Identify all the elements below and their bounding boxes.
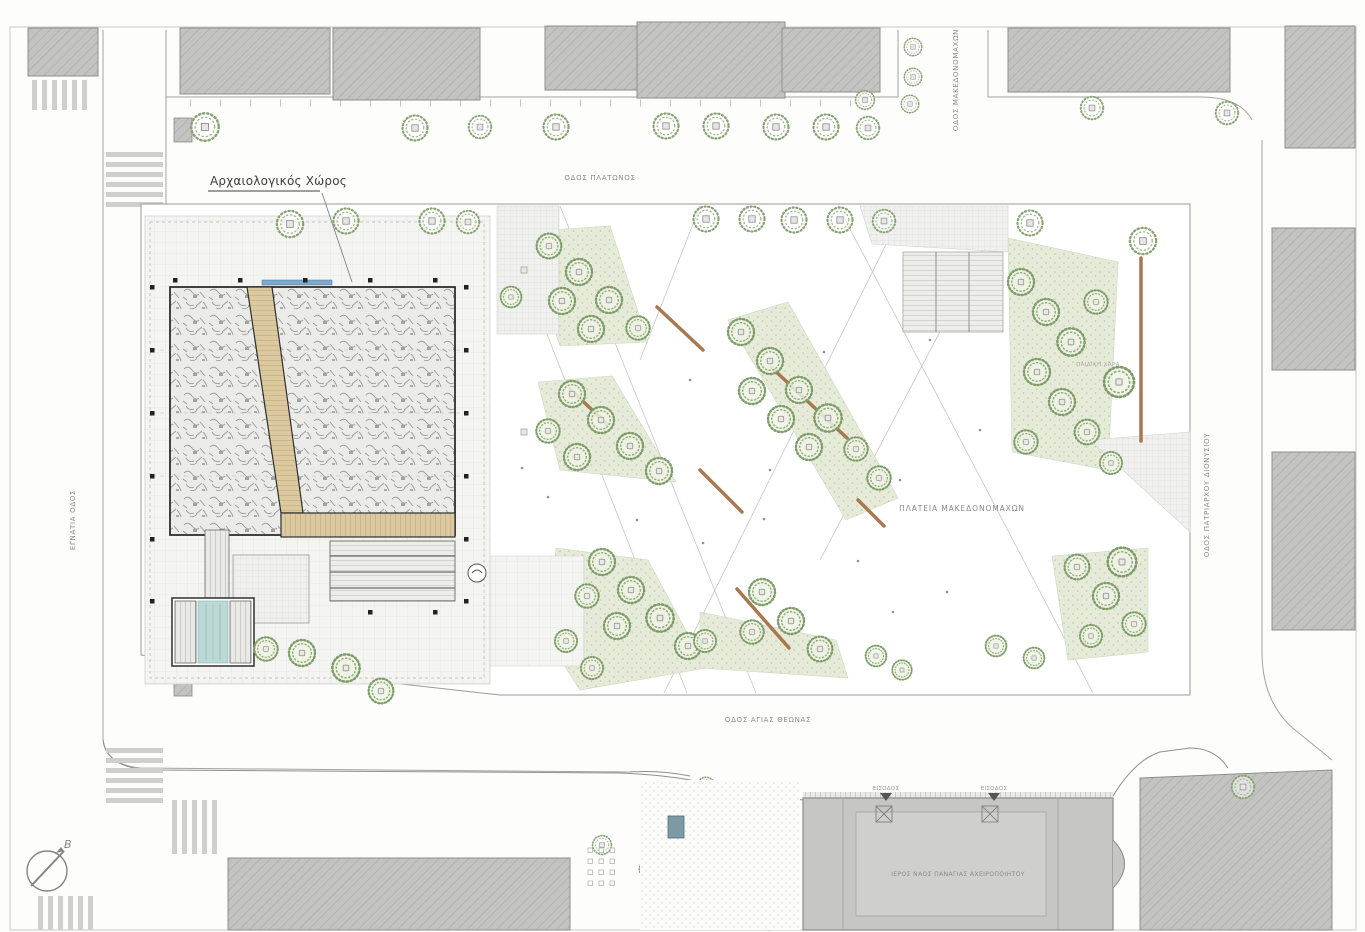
paved-area (497, 206, 559, 334)
tree-icon (739, 378, 765, 404)
compass-north-label: Β (64, 838, 72, 851)
tree-icon (1008, 269, 1034, 295)
water-feature (172, 598, 254, 666)
building (1285, 26, 1355, 148)
tree-icon (828, 208, 853, 233)
tree-icon (694, 207, 719, 232)
tree-icon (564, 444, 590, 470)
tree-icon (1232, 776, 1255, 799)
tree-icon (544, 115, 569, 140)
tree-icon (559, 381, 585, 407)
section-marker (468, 564, 486, 582)
tree-icon (796, 434, 822, 460)
tree-icon (1104, 367, 1134, 397)
building (228, 858, 570, 930)
church-garden (640, 780, 800, 930)
tree-icon (589, 549, 615, 575)
tree-icon (786, 377, 812, 403)
building (180, 28, 330, 94)
tree-icon (646, 458, 672, 484)
tree-icon (277, 211, 303, 237)
tree-icon (1075, 420, 1100, 445)
church-block (588, 780, 1125, 930)
crosswalk-bottom-diagonal (172, 800, 217, 854)
tree-icon (901, 95, 919, 113)
crosswalk-left-lower (106, 748, 163, 803)
tree-icon (764, 115, 789, 140)
tree-icon (420, 209, 445, 234)
tree-icon (654, 114, 679, 139)
tree-icon (334, 209, 359, 234)
street-label-top-right: ΟΔΟΣ ΜΑΚΕΔΟΝΟΜΑΧΩΝ (952, 29, 960, 131)
site-plan-drawing: Αρχαιολογικός Χώρος ΟΔΟΣ ΠΛΑΤΩΝΟΣ ΟΔΟΣ Α… (0, 0, 1365, 932)
tree-icon (986, 636, 1007, 657)
tree-icon (1014, 430, 1037, 453)
tree-icon (768, 406, 794, 432)
tree-icon (814, 404, 841, 431)
tree-icon (749, 579, 775, 605)
tree-icon (1084, 290, 1107, 313)
tree-icon (782, 208, 807, 233)
tree-icon (1130, 228, 1156, 254)
tree-icon (566, 259, 592, 285)
building (1272, 228, 1355, 370)
tree-icon (904, 68, 922, 86)
building (28, 28, 98, 76)
crosswalk-bottom-corner (38, 896, 93, 930)
tree-icon (457, 211, 480, 234)
entrance-label-1: ΕΙΣΟΔΟΣ (873, 786, 900, 792)
info-panel (262, 280, 332, 285)
tree-icon (757, 348, 783, 374)
tree-icon (578, 316, 604, 342)
tree-icon (1057, 328, 1084, 355)
tree-icon (501, 287, 522, 308)
tree-icon (1081, 97, 1104, 120)
tree-icon (867, 466, 890, 489)
street-label-right: ΟΔΟΣ ΠΑΤΡΙΑΡΧΟΥ ΔΙΟΝΥΣΙΟΥ (1203, 433, 1211, 558)
tree-icon (1216, 102, 1239, 125)
building (1272, 452, 1355, 630)
tree-icon (904, 38, 922, 56)
tree-icon (596, 287, 622, 313)
tree-icon (289, 640, 315, 666)
tree-icon (728, 319, 754, 345)
tree-icon (536, 419, 559, 442)
tree-icon (332, 654, 359, 681)
tree-icon (866, 646, 887, 667)
tree-icon (581, 657, 603, 679)
archaeological-site (145, 191, 490, 684)
tree-icon (740, 620, 763, 643)
tree-icon (1024, 648, 1045, 669)
tree-icon (694, 630, 716, 652)
plaza-label: ΠΛΑΤΕΙΑ ΜΑΚΕΔΟΝΟΜΑΧΩΝ (899, 504, 1025, 513)
tree-icon (1065, 555, 1090, 580)
tree-icon (403, 116, 428, 141)
tree-icon (1018, 211, 1043, 236)
tree-icon (704, 114, 729, 139)
crosswalk-top-left (32, 80, 87, 110)
tree-icon (646, 604, 673, 631)
wooden-deck (281, 513, 455, 537)
tree-icon (618, 577, 644, 603)
tree-icon (1093, 583, 1119, 609)
church-nave (856, 812, 1046, 916)
street-label-left: ΕΓΝΑΤΙΑ ΟΔΟΣ (69, 490, 77, 550)
tree-grate (521, 267, 527, 273)
tree-icon (537, 234, 562, 259)
playground-label: ΠΑΙΔΙΚΗ ΧΑΡΑ (1076, 362, 1120, 368)
site-plan-sheet: Αρχαιολογικός Χώρος ΟΔΟΣ ΠΛΑΤΩΝΟΣ ΟΔΟΣ Α… (0, 0, 1365, 932)
building (545, 26, 641, 90)
entrance-label-2: ΕΙΣΟΔΟΣ (981, 786, 1008, 792)
tree-icon (254, 637, 277, 660)
tree-icon (1049, 389, 1075, 415)
building (333, 28, 480, 100)
site-stairs (330, 541, 455, 601)
tree-icon (857, 117, 880, 140)
plaza-stairs (903, 252, 1003, 332)
excavation-area (170, 287, 455, 535)
tree-icon (626, 316, 649, 339)
building (782, 28, 880, 92)
tree-icon (588, 407, 614, 433)
tree-icon (1122, 612, 1145, 635)
tree-icon (1080, 625, 1102, 647)
tree-icon (778, 608, 804, 634)
street-label-bottom: ΟΔΟΣ ΑΓΙΑΣ ΘΕΩΝΑΣ (725, 716, 811, 724)
north-compass-icon: Β (27, 838, 72, 891)
tree-icon (1033, 299, 1059, 325)
tree-icon (892, 660, 912, 680)
tree-icon (617, 433, 643, 459)
crosswalk-left-upper (106, 152, 163, 207)
bus-stop (174, 118, 192, 142)
church-label: ΙΕΡΟΣ ΝΑΟΣ ΠΑΝΑΓΙΑΣ ΑΧΕΙΡΟΠΟΙΗΤΟΥ (891, 871, 1025, 878)
tree-icon (604, 613, 630, 639)
garden-pool (668, 816, 684, 838)
tree-icon (1100, 452, 1122, 474)
building (1008, 28, 1230, 92)
tree-icon (844, 437, 867, 460)
tree-icon (873, 210, 896, 233)
tree-icon (856, 91, 875, 110)
tree-icon (549, 288, 575, 314)
church-canopy (803, 792, 1113, 798)
tree-icon (1024, 359, 1050, 385)
tree-icon (191, 113, 219, 141)
church-apse (1113, 840, 1125, 888)
tree-icon (469, 116, 492, 139)
top-street-curb-right (988, 97, 1252, 120)
archaeological-site-label: Αρχαιολογικός Χώρος (210, 174, 347, 188)
street-label-top: ΟΔΟΣ ΠΛΑΤΩΝΟΣ (564, 174, 635, 182)
tree-grate (521, 429, 527, 435)
building (637, 22, 785, 98)
tree-icon (1108, 548, 1137, 577)
tree-icon (814, 115, 839, 140)
tree-icon (555, 630, 577, 652)
tree-icon (808, 637, 833, 662)
tree-icon (575, 584, 598, 607)
tree-icon (369, 679, 394, 704)
site-pier (205, 530, 229, 598)
tree-icon (740, 207, 765, 232)
